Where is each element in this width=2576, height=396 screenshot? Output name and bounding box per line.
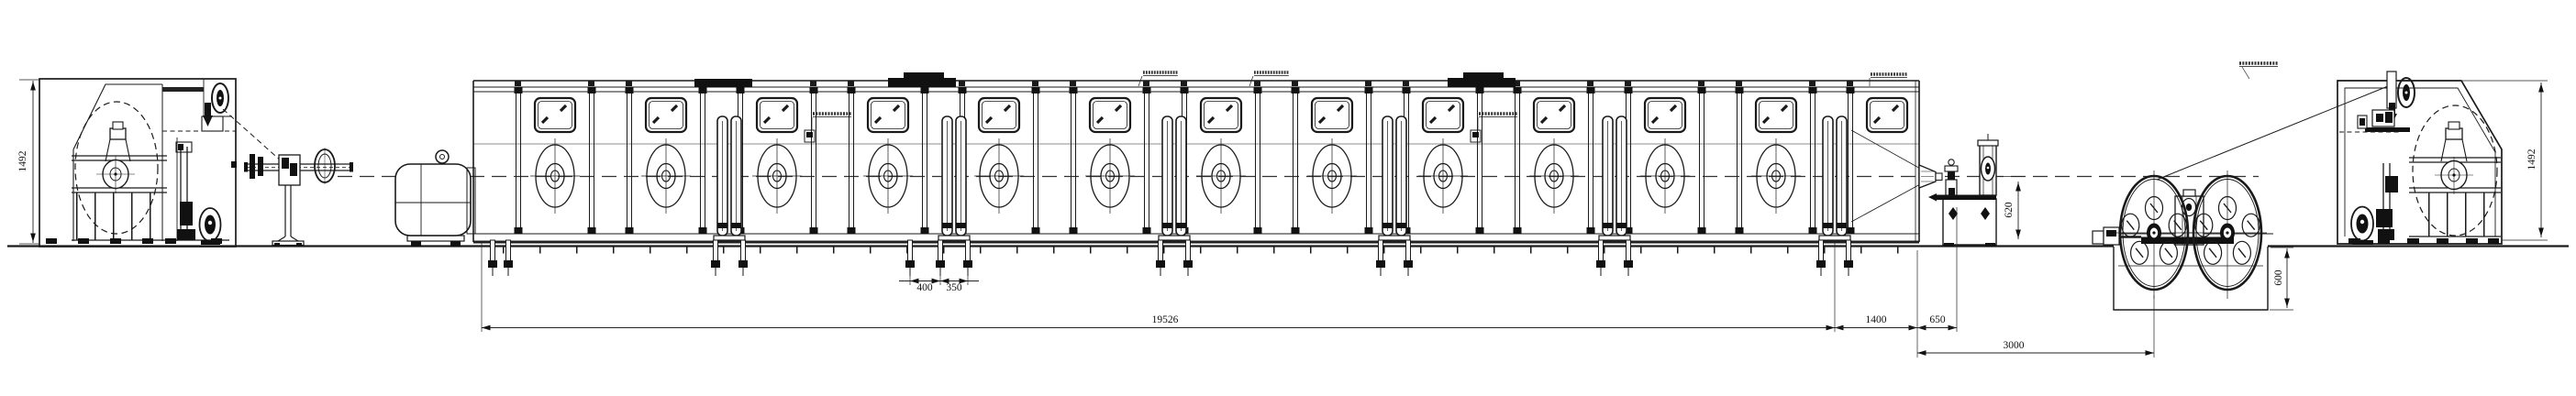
dim-620-text: 620: [2004, 202, 2015, 218]
takeup-stand: [2337, 71, 2502, 245]
takeup-traverse-unit: [2376, 163, 2398, 240]
dim-3000-text: 3000: [2004, 340, 2025, 351]
dim-650: 650: [1917, 314, 1957, 330]
dim-3000: 3000: [1917, 340, 2154, 356]
wire-tension-device: [1945, 159, 1958, 195]
exit-die: [1919, 165, 1942, 188]
leader-annotation: [1871, 74, 1907, 78]
dim-1400-text: 1400: [1866, 314, 1887, 325]
wheel-takeup-unit: [2093, 170, 2273, 299]
payoff-height-dimension: 1492: [17, 80, 39, 244]
height-620-dimension: 620: [1996, 177, 2024, 240]
leader-annotation: [1254, 72, 1289, 76]
dim-650-text: 650: [1929, 314, 1946, 325]
payoff-base-pads: [46, 238, 222, 244]
leader-annotation: [1143, 72, 1178, 76]
anchor-pitch-dimension: 400 350: [899, 272, 979, 293]
drive-motor: [395, 150, 475, 247]
payoff-spindle-hub: [96, 122, 135, 193]
overall-length-dimension: 19526: [482, 314, 1835, 330]
wire-guide-stand: [244, 148, 353, 246]
machine-line-drawing: 1492: [0, 0, 2576, 396]
dim-1400: 1400: [1835, 314, 1917, 330]
pit-depth-dimension: 600: [2270, 247, 2293, 310]
dim-600-text: 600: [2273, 269, 2284, 286]
capstan-pedestal: [1928, 134, 1998, 247]
roof-fan-boxes: [694, 72, 1516, 87]
guide-posts: [711, 116, 1853, 276]
payoff-traverse-unit: [176, 142, 195, 240]
takeup-height-dimension: 1492: [2461, 81, 2548, 240]
leader-annotation: [2239, 63, 2278, 67]
pedestal-guide-wheel: [1978, 134, 1998, 195]
lifting-eye: [436, 150, 449, 163]
dim-19526-text: 19526: [1152, 314, 1179, 325]
dim-400-text: 400: [916, 282, 933, 293]
payoff-height-text: 1492: [17, 150, 28, 171]
leader-annotation: [1479, 114, 1517, 117]
engineering-drawing-sheet: 1492: [0, 0, 2576, 396]
dim-350-text: 350: [946, 282, 962, 293]
takeup-height-text: 1492: [2526, 148, 2537, 170]
payoff-stand: [39, 79, 237, 247]
payoff-top-pulley: [202, 83, 232, 131]
leader-annotation: [813, 114, 851, 117]
takeup-gear-unit: [2358, 110, 2410, 132]
guide-ring: [315, 148, 335, 184]
